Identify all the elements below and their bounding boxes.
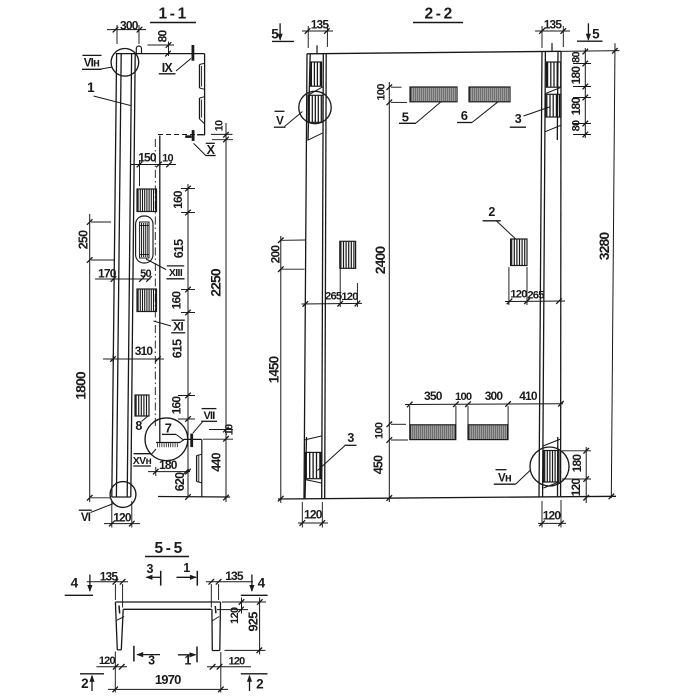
svg-text:10: 10 — [223, 424, 235, 435]
svg-text:3: 3 — [148, 653, 155, 667]
svg-text:7: 7 — [165, 421, 172, 436]
svg-text:1: 1 — [184, 653, 191, 667]
svg-text:1970: 1970 — [155, 672, 181, 687]
svg-text:80: 80 — [156, 30, 170, 43]
svg-text:120: 120 — [99, 655, 116, 667]
svg-text:160: 160 — [170, 396, 184, 415]
svg-text:160: 160 — [171, 190, 185, 209]
svg-text:3: 3 — [347, 431, 354, 445]
svg-text:250: 250 — [76, 230, 90, 249]
svg-text:XI: XI — [173, 320, 183, 334]
svg-text:180: 180 — [569, 97, 583, 116]
svg-text:100: 100 — [375, 84, 387, 101]
svg-text:3: 3 — [147, 562, 154, 576]
svg-text:310: 310 — [135, 344, 154, 358]
svg-text:135: 135 — [544, 18, 563, 32]
svg-text:925: 925 — [245, 612, 260, 632]
svg-text:120: 120 — [510, 288, 527, 300]
svg-text:410: 410 — [519, 389, 538, 403]
svg-text:350: 350 — [424, 389, 443, 403]
svg-text:615: 615 — [170, 339, 184, 358]
svg-text:5 - 5: 5 - 5 — [154, 540, 182, 557]
svg-text:120: 120 — [229, 655, 246, 667]
svg-text:2: 2 — [488, 205, 495, 219]
svg-text:120: 120 — [304, 508, 323, 522]
svg-text:300: 300 — [120, 19, 139, 33]
svg-text:620: 620 — [173, 472, 187, 491]
svg-text:IX: IX — [162, 61, 174, 75]
svg-text:VIн: VIн — [84, 58, 100, 70]
svg-text:1800: 1800 — [72, 371, 88, 400]
svg-text:1: 1 — [183, 561, 190, 575]
svg-text:VII: VII — [203, 410, 215, 422]
svg-text:6: 6 — [461, 108, 468, 123]
svg-text:135: 135 — [225, 569, 244, 583]
svg-text:Vн: Vн — [498, 473, 512, 485]
svg-text:VI: VI — [81, 512, 91, 524]
svg-text:120: 120 — [341, 291, 358, 303]
svg-text:440: 440 — [209, 452, 223, 471]
svg-text:300: 300 — [485, 389, 504, 403]
svg-text:120: 120 — [229, 607, 241, 624]
svg-text:V: V — [276, 116, 284, 128]
svg-text:10: 10 — [213, 120, 225, 131]
svg-text:1 - 1: 1 - 1 — [158, 5, 186, 22]
svg-text:100: 100 — [373, 422, 385, 439]
svg-text:135: 135 — [311, 17, 330, 31]
svg-text:200: 200 — [269, 245, 283, 264]
svg-text:2400: 2400 — [372, 246, 388, 275]
svg-text:265: 265 — [325, 290, 342, 302]
svg-text:180: 180 — [159, 458, 178, 472]
svg-text:5: 5 — [402, 110, 409, 125]
svg-text:160: 160 — [170, 291, 184, 310]
svg-text:2: 2 — [81, 676, 88, 691]
svg-text:3: 3 — [515, 112, 522, 126]
svg-text:1450: 1450 — [267, 356, 282, 383]
svg-text:3280: 3280 — [596, 232, 612, 261]
svg-text:2: 2 — [256, 677, 263, 692]
svg-text:265: 265 — [527, 289, 544, 301]
svg-text:2250: 2250 — [207, 268, 223, 297]
svg-text:615: 615 — [172, 239, 186, 258]
svg-text:120: 120 — [113, 511, 132, 525]
svg-text:180: 180 — [569, 66, 583, 85]
svg-text:120: 120 — [543, 509, 562, 523]
svg-text:120: 120 — [569, 478, 583, 497]
svg-text:450: 450 — [371, 455, 385, 474]
svg-text:100: 100 — [455, 391, 472, 403]
svg-text:80: 80 — [570, 120, 582, 131]
svg-text:XIII: XIII — [169, 267, 183, 279]
svg-text:80: 80 — [571, 52, 583, 63]
svg-text:2 - 2: 2 - 2 — [424, 5, 451, 22]
svg-text:180: 180 — [570, 454, 584, 473]
